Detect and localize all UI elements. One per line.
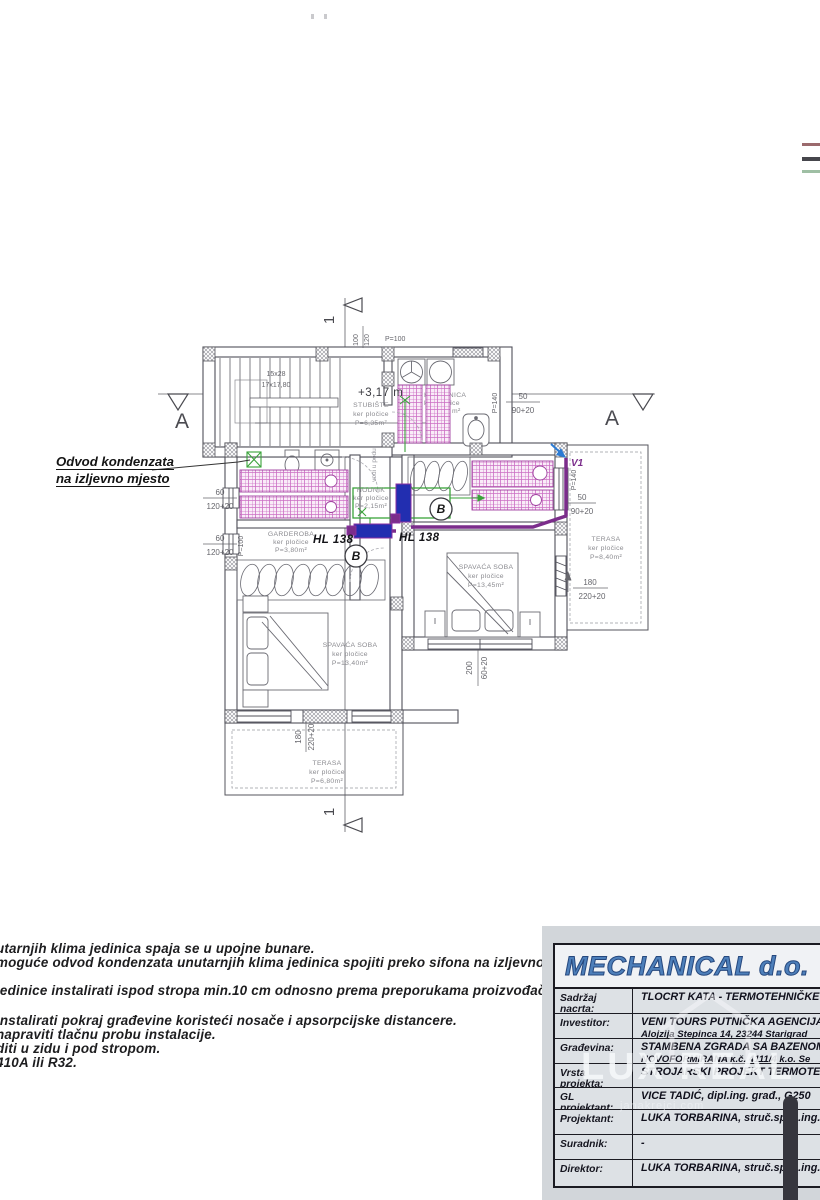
svg-text:m²: m²: [452, 408, 461, 415]
titleblock-row: Direktor: LUKA TORBARINA, struč.spec.ing…: [555, 1160, 820, 1188]
svg-text:P=3,80m²: P=3,80m²: [275, 547, 307, 554]
stair-dim-1: 15x28: [266, 371, 285, 378]
row-label: Investitor:: [555, 1014, 633, 1038]
svg-text:ker pločice: ker pločice: [353, 495, 389, 502]
row-label: Građevina:: [555, 1039, 633, 1063]
dim-window-60: 60: [216, 488, 225, 497]
svg-text:P=6,80m²: P=6,80m²: [311, 778, 343, 785]
dim-100: 100: [353, 334, 360, 346]
svg-text:ker pločice: ker pločice: [468, 573, 504, 580]
bed-left: [243, 596, 328, 707]
section-number-1-top: 1: [321, 316, 338, 324]
svg-text:P=6,35m²: P=6,35m²: [355, 420, 387, 427]
svg-text:ker pločice: ker pločice: [353, 411, 389, 418]
titleblock-row: GL projektant: VICE TADIĆ, dipl.ing. gra…: [555, 1088, 820, 1110]
dim-window-sill: 120+20: [207, 548, 234, 557]
dim-terrace-sill: 220+20: [579, 592, 606, 601]
note-line: napraviti tlačnu probu instalacije.: [0, 1027, 216, 1042]
svg-text:P=13,40m²: P=13,40m²: [332, 660, 369, 667]
dim-window-sill: 90+20: [512, 406, 535, 415]
row-label: Suradnik:: [555, 1135, 633, 1159]
pen-obstruction: [783, 1096, 798, 1200]
stair-dim-2: 17x17,80: [262, 382, 291, 389]
dim-terrace-180: 180: [294, 730, 303, 744]
section-letter-a-left: A: [175, 410, 189, 433]
note-line: instalirati pokraj građevine koristeći n…: [0, 1013, 457, 1028]
row-label: Sadržaj nacrta:: [555, 989, 633, 1013]
dim-p140: P=140: [492, 393, 499, 414]
ac-indoor-unit-horizontal: [354, 524, 392, 538]
row-label: GL projektant:: [555, 1088, 633, 1109]
floor-drain-label: HL 138: [399, 532, 440, 544]
dim-terrace-sill: 220+20: [307, 723, 316, 750]
riser-v1-label: V1: [571, 458, 584, 469]
dim-p140: P=140: [571, 470, 578, 491]
hanger-coil-right: [408, 460, 470, 492]
svg-text:SPAVAĆA SOBA: SPAVAĆA SOBA: [459, 562, 514, 571]
dim-window-sill: 120+20: [207, 502, 234, 511]
floor-drain-label: HL 138: [313, 534, 354, 546]
annotation-line-2: na izljevno mjesto: [56, 471, 170, 486]
svg-text:TERASA: TERASA: [592, 536, 621, 543]
dim-window-sill: 90+20: [571, 507, 594, 516]
dim-window-60: 60: [216, 534, 225, 543]
note-line: moguće odvod kondenzata unutarnjih klima…: [0, 955, 628, 970]
row-label: Vrsta projekta:: [555, 1064, 633, 1087]
dim-door-p100: P=100: [385, 336, 406, 343]
dim-window-50: 50: [578, 493, 587, 502]
svg-text:GARDEROBA: GARDEROBA: [268, 531, 314, 538]
titleblock-row: Projektant: LUKA TORBARINA, struč.spec.i…: [555, 1110, 820, 1135]
titleblock-row: Suradnik: -: [555, 1135, 820, 1160]
b-symbol-label: B: [352, 549, 361, 563]
note-line: 410A ili R32.: [0, 1055, 77, 1070]
dim-120: 120: [364, 334, 371, 346]
titleblock-header: MECHANICAL d.o.: [555, 945, 820, 989]
row-label: Direktor:: [555, 1160, 633, 1188]
light-symbol-icon: [430, 361, 452, 383]
svg-text:TERASA: TERASA: [313, 760, 342, 767]
dim-opening-sill: 60+20: [480, 656, 489, 679]
svg-text:P=13,45m²: P=13,45m²: [468, 582, 505, 589]
svg-text:ker pločice: ker pločice: [332, 651, 368, 658]
row-label: Projektant:: [555, 1110, 633, 1134]
house-watermark-icon: [650, 985, 770, 1075]
pipe-route-note: vodi u podu: [371, 448, 378, 482]
svg-text:STUBIŠTE: STUBIŠTE: [353, 400, 389, 409]
svg-text:P=8,40m²: P=8,40m²: [590, 554, 622, 561]
b-symbol-label: B: [437, 502, 446, 516]
note-line: jedinice instalirati ispod stropa min.10…: [0, 983, 621, 998]
condensate-annotation: Odvod kondenzata na izljevno mjesto: [56, 453, 176, 487]
svg-text:ker pločice: ker pločice: [588, 545, 624, 552]
dim-window-50: 50: [519, 392, 528, 401]
note-line: utarnjih klima jedinica spaja se u upojn…: [0, 941, 315, 956]
svg-text:P=2,15m²: P=2,15m²: [355, 503, 387, 510]
scanned-floor-plan-page: KUPAONICA ker pločice m²: [0, 0, 820, 1200]
svg-text:HODNIK: HODNIK: [357, 487, 385, 494]
dim-terrace-180: 180: [583, 578, 597, 587]
level-annotation: +3,17 m: [358, 387, 403, 399]
svg-text:SPAVAĆA SOBA: SPAVAĆA SOBA: [323, 640, 378, 649]
dim-opening-200: 200: [465, 661, 474, 675]
dim-p100-left: P=100: [238, 536, 245, 557]
annotation-line-1: Odvod kondenzata: [56, 454, 174, 469]
svg-text:ker pločice: ker pločice: [273, 539, 309, 546]
svg-text:ker pločice: ker pločice: [309, 769, 345, 776]
note-line: diti u zidu i pod stropom.: [0, 1041, 160, 1056]
section-number-1-bottom: 1: [321, 808, 338, 816]
company-name: MECHANICAL d.o.: [565, 951, 809, 982]
section-letter-a-right: A: [605, 407, 619, 430]
